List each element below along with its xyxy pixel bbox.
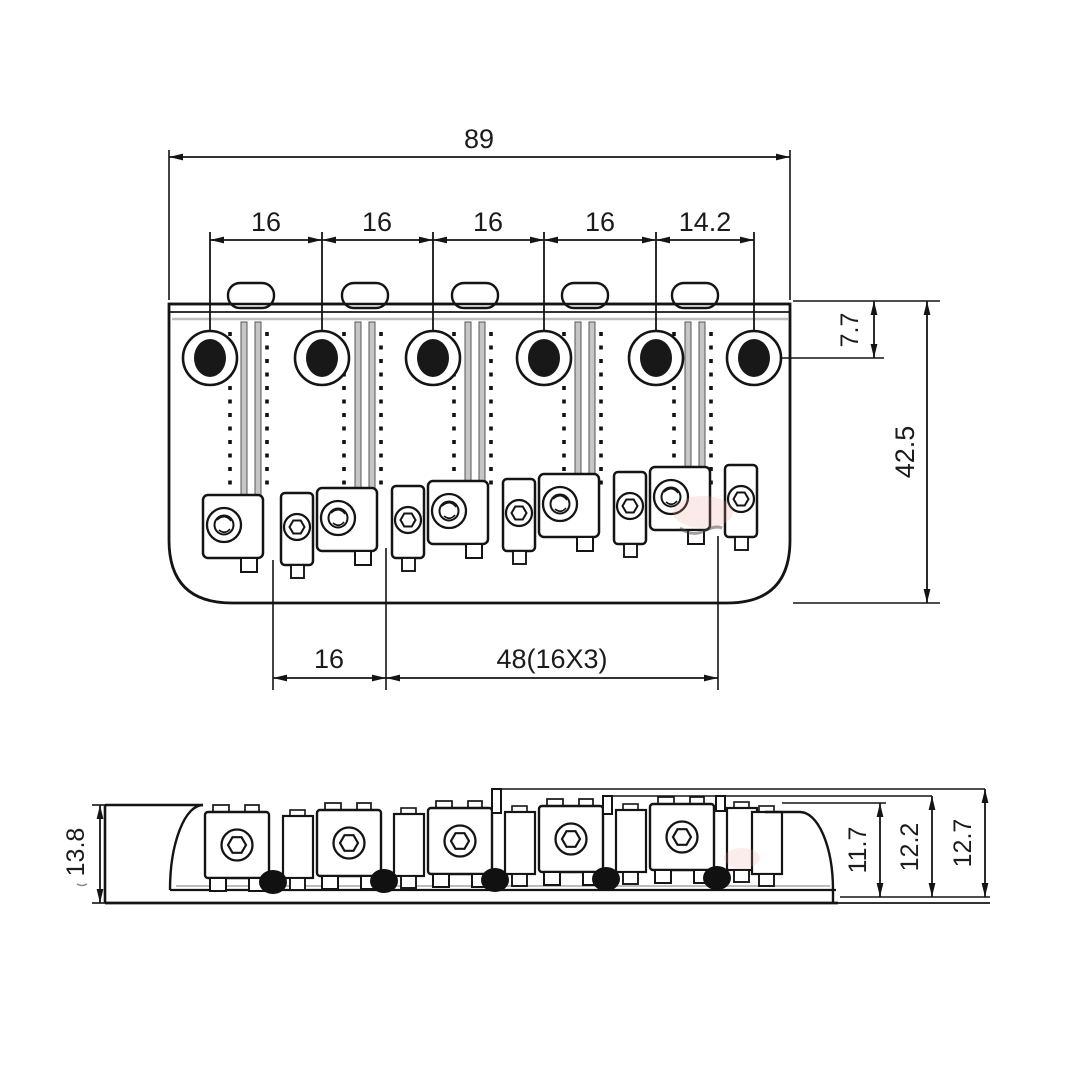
dim-spacing-4: 16 — [585, 207, 615, 237]
dim-overall-depth: 42.5 — [793, 301, 940, 603]
dim-spacing-5: 14.2 — [679, 207, 732, 237]
mounting-hole — [295, 331, 349, 385]
dim-spacing-1: 16 — [251, 207, 281, 237]
side-saddle-small — [394, 808, 424, 888]
bridge-drawing-svg: 89 16 16 16 16 14.2 7.7 42.5 — [0, 0, 1080, 1080]
string-ball — [481, 868, 509, 892]
technical-drawing-page: 89 16 16 16 16 14.2 7.7 42.5 — [0, 0, 1080, 1080]
side-saddle-large — [650, 797, 714, 883]
saddle-block-small — [392, 486, 424, 571]
side-saddle-large — [205, 805, 269, 891]
dim-hole-spacings: 16 16 16 16 14.2 — [210, 207, 754, 240]
side-saddle-small — [752, 806, 782, 886]
dim-max-height-label: 12.7 — [949, 819, 977, 868]
top-view: 89 16 16 16 16 14.2 7.7 42.5 — [169, 124, 940, 690]
print-smudge — [673, 496, 733, 528]
height-post — [492, 789, 501, 813]
dim-overall-depth-label: 42.5 — [890, 426, 920, 479]
mounting-hole — [406, 331, 460, 385]
side-saddle-small — [616, 804, 646, 884]
print-smudge — [724, 848, 760, 868]
dim-edge-to-hole-label: 7.7 — [836, 313, 864, 348]
string-ball — [259, 870, 287, 894]
dim-saddle-height-label: 11.7 — [844, 827, 872, 874]
side-saddle-small — [283, 810, 313, 890]
side-saddle-large — [539, 799, 603, 885]
dim-mid-height-label: 12.2 — [896, 823, 924, 872]
height-post — [603, 796, 612, 814]
saddle-block-small — [281, 493, 313, 578]
string-ball — [370, 869, 398, 893]
mounting-hole — [629, 331, 683, 385]
dim-overall-height: 13.8 — [62, 805, 108, 903]
dim-spacing-2: 16 — [362, 207, 392, 237]
mounting-hole — [183, 331, 237, 385]
saddle-block-small — [503, 479, 535, 564]
dim-saddle-span-label: 48(16X3) — [496, 644, 607, 674]
side-saddle-small — [505, 806, 535, 886]
dim-overall-height-label: 13.8 — [62, 828, 90, 877]
string-ball — [592, 867, 620, 891]
dim-edge-to-hole: 7.7 — [780, 301, 884, 358]
saddle-block-small — [614, 472, 646, 557]
print-scribble — [77, 884, 87, 886]
side-view: 13.8 11.7 12.2 12.7 — [62, 789, 990, 903]
dim-overall-width-label: 89 — [464, 124, 494, 154]
dim-saddle-pitch-label: 16 — [314, 644, 344, 674]
mounting-hole — [727, 331, 781, 385]
height-post — [716, 796, 725, 811]
side-saddle-large — [428, 801, 492, 887]
mounting-hole — [517, 331, 571, 385]
dim-spacing-3: 16 — [473, 207, 503, 237]
string-ball — [703, 866, 731, 890]
